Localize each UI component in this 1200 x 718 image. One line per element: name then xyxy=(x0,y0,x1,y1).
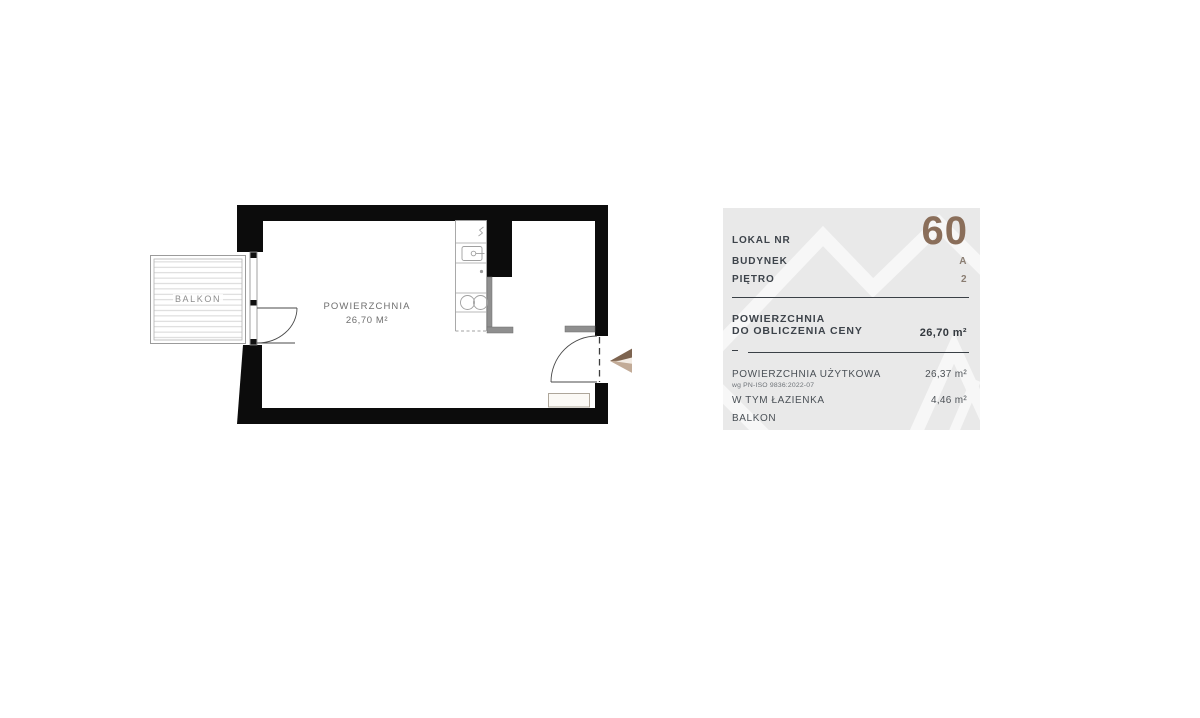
room-area-label: POWIERZCHNIA 26,70 m² xyxy=(300,301,434,326)
kitchen-counter xyxy=(456,221,488,332)
building-value: A xyxy=(959,256,967,267)
unit-number-label: LOKAL NR xyxy=(732,235,791,246)
entrance-door-swing-arc xyxy=(551,336,597,382)
partition-entry-stub xyxy=(565,326,595,332)
balcony-door-mullion-top xyxy=(251,253,257,259)
floor-label: PIĘTRO xyxy=(732,274,775,285)
usable-area-norm-note: wg PN-ISO 9836:2022-07 xyxy=(732,382,814,389)
usable-area-value: 26,37 m² xyxy=(925,369,967,380)
divider-tick xyxy=(732,350,738,351)
wall-left-lower xyxy=(237,345,262,424)
balcony-label: BALKON xyxy=(150,294,246,304)
wall-left-upper xyxy=(237,205,263,252)
balcony-door-frame xyxy=(250,252,257,345)
wall-column-kitchen xyxy=(487,220,512,277)
cabinet-knob-icon xyxy=(480,270,483,273)
price-area-label: POWIERZCHNIA DO OBLICZENIA CENY xyxy=(732,314,863,337)
divider xyxy=(732,297,969,298)
partition-walls xyxy=(487,277,595,333)
wall-right-lower xyxy=(595,383,608,424)
wall-bottom xyxy=(262,408,608,424)
price-area-value: 26,70 m² xyxy=(920,327,967,339)
balcony-door xyxy=(250,252,297,345)
info-panel-content: LOKAL NR 60 BUDYNEK A PIĘTRO 2 POWIERZCH… xyxy=(723,208,980,430)
doormat xyxy=(549,394,590,408)
entrance-door xyxy=(551,336,600,382)
bathroom-area-label: W TYM ŁAZIENKA xyxy=(732,395,825,406)
divider xyxy=(748,352,969,353)
balcony-door-swing-arc xyxy=(257,308,297,343)
room-area-title: POWIERZCHNIA xyxy=(300,301,434,312)
partition-bathroom-horizontal xyxy=(487,327,513,333)
wall-top xyxy=(237,205,608,221)
balcony-door-mullion-bottom xyxy=(251,339,257,345)
info-panel: LOKAL NR 60 BUDYNEK A PIĘTRO 2 POWIERZCH… xyxy=(723,208,980,430)
kitchen-counter-outline xyxy=(456,221,487,332)
building-label: BUDYNEK xyxy=(732,256,788,267)
wall-right-upper xyxy=(595,205,608,336)
bathroom-area-value: 4,46 m² xyxy=(931,395,967,406)
unit-number-value: 60 xyxy=(922,214,969,248)
entrance-arrow-icon xyxy=(610,348,632,375)
floor-value: 2 xyxy=(961,274,967,285)
balcony-door-mullion-middle xyxy=(251,300,257,306)
usable-area-label: POWIERZCHNIA UŻYTKOWA xyxy=(732,369,881,380)
floor-plan: BALKON POWIERZCHNIA 26,70 m² xyxy=(148,200,632,436)
balcony-row-label: BALKON xyxy=(732,413,776,424)
room-area-value: 26,70 m² xyxy=(300,315,434,326)
